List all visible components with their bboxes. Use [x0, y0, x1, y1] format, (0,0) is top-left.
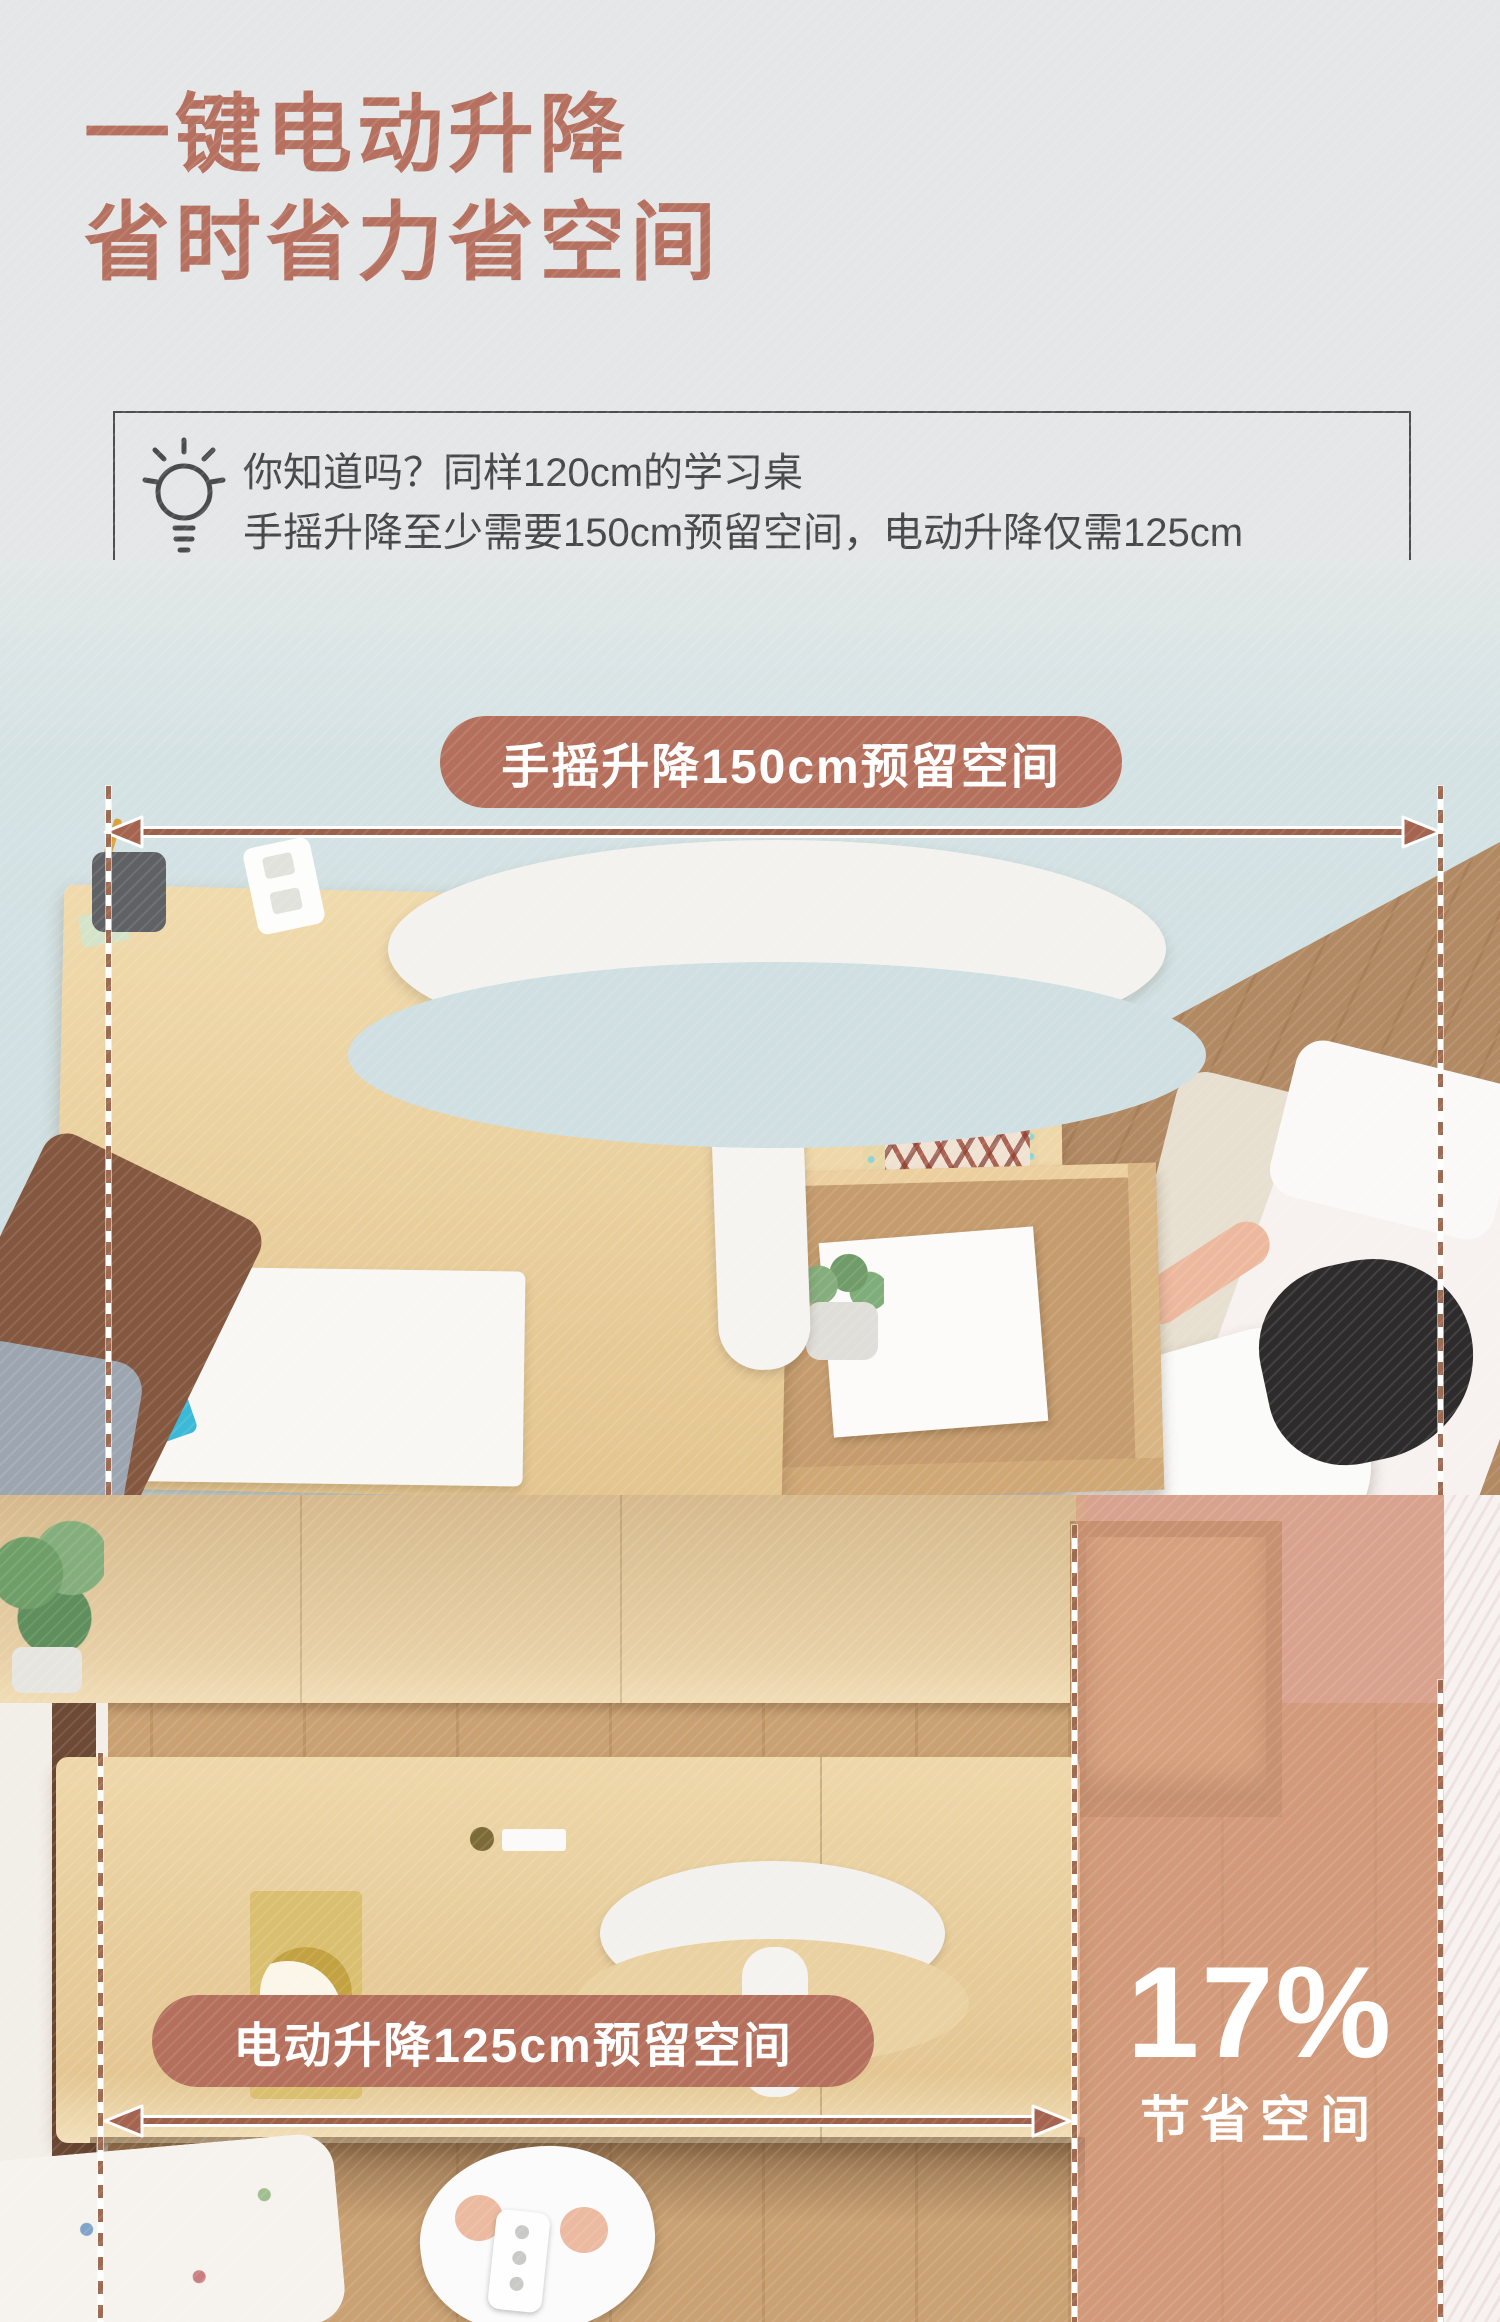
lift-remote-control — [487, 2208, 551, 2313]
tip-text: 你知道吗？同样120cm的学习桌 手摇升降至少需要150cm预留空间，电动升降仅… — [243, 428, 1403, 578]
page-title-line1: 一键电动升降 — [84, 92, 630, 178]
photo-crank-desk: 手摇升降150cm预留空间 — [0, 560, 1500, 1495]
plant-pot — [12, 1647, 82, 1693]
crank-clearance-label: 手摇升降150cm预留空间 — [501, 727, 1060, 797]
book-stand-wall — [752, 1458, 1165, 1495]
span-125cm-left-guide — [98, 1753, 103, 2322]
product-poster: 一键电动升降 省时省力省空间 你知道吗？同样120cm的学习桌 手摇升降至少需要… — [0, 0, 1500, 2322]
savings-percentage: 17% — [1080, 1937, 1440, 2087]
tip-line2: 手摇升降至少需要150cm预留空间，电动升降仅需125cm — [243, 511, 1403, 555]
measurement-arrow-125cm — [100, 2103, 1075, 2139]
span-125cm-right-guide — [1072, 1525, 1077, 2322]
white-curtain-strip — [1444, 1495, 1500, 2322]
desk-knob — [470, 1827, 494, 1851]
span-150cm-left-guide — [106, 786, 111, 1495]
wall-shelf — [0, 1495, 1085, 1703]
electric-clearance-label: 电动升降125cm预留空间 — [233, 2006, 792, 2076]
chair-headrest — [388, 840, 1166, 1058]
kid-hand — [560, 2207, 608, 2253]
patterned-pillow — [0, 2132, 348, 2322]
savings-caption: 节省空间 — [1080, 2080, 1440, 2152]
pencil-cup — [92, 852, 166, 932]
tip-line1: 你知道吗？同样120cm的学习桌 — [243, 451, 1403, 495]
lightbulb-icon — [141, 436, 227, 568]
green-plant — [0, 1513, 104, 1663]
measurement-arrow-150cm — [100, 814, 1445, 850]
electric-clearance-badge: 电动升降125cm预留空间 — [152, 1995, 874, 2087]
page-title-line2: 省时省力省空间 — [84, 200, 721, 286]
span-150cm-right-guide — [1438, 786, 1443, 1495]
photo-electric-desk: 17% 节省空间 电动升降125cm预留空间 — [0, 1495, 1500, 2322]
crank-clearance-badge: 手摇升降150cm预留空间 — [440, 716, 1122, 808]
saved-space-overlay — [1076, 1495, 1444, 2322]
succulent-pot — [806, 1302, 878, 1360]
desk-label — [502, 1829, 566, 1851]
